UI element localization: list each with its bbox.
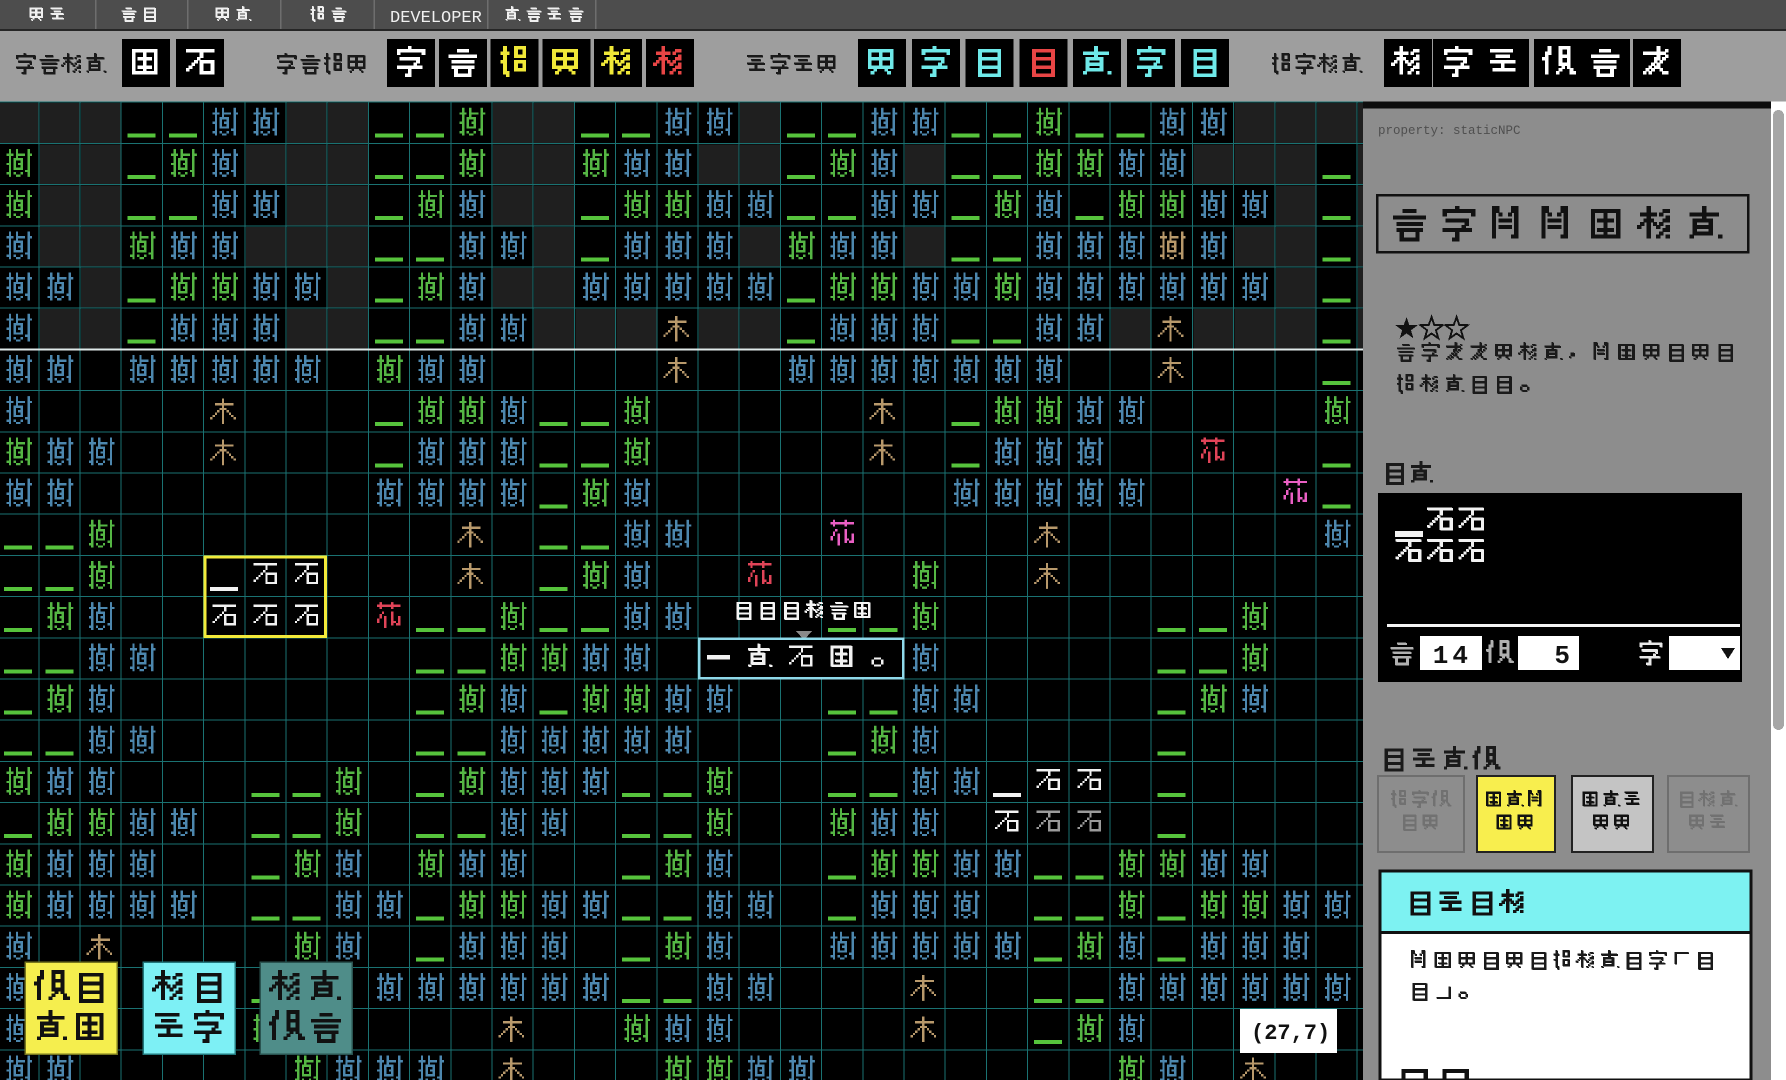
- svg-text:14: 14: [1433, 641, 1472, 671]
- svg-text:property: staticNPC: property: staticNPC: [1378, 124, 1521, 138]
- svg-text:DEVELOPER: DEVELOPER: [390, 9, 482, 28]
- svg-text:(27,7): (27,7): [1251, 1021, 1330, 1046]
- svg-text:5: 5: [1554, 641, 1570, 671]
